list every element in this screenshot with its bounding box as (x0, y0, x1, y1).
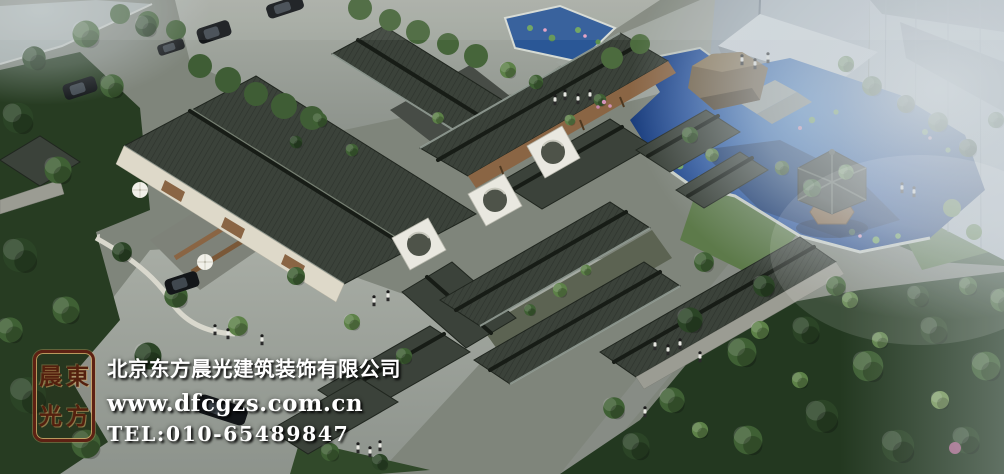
company-seal: 晨 東 光 方 (33, 350, 95, 442)
seal-char-top-right: 東 (66, 365, 89, 388)
company-name: 北京东方晨光建筑装饰有限公司 (107, 352, 401, 382)
patio-umbrella (132, 182, 148, 198)
patio-umbrella (197, 254, 213, 270)
watermark: 晨 東 光 方 北京东方晨光建筑装饰有限公司 www.dfcgzs.com.cn… (33, 350, 401, 446)
seal-char-bottom-left: 光 (39, 405, 62, 428)
seal-char-bottom-right: 方 (66, 405, 89, 428)
website-url: www.dfcgzs.com.cn (107, 390, 401, 417)
architectural-rendering: 晨 東 光 方 北京东方晨光建筑装饰有限公司 www.dfcgzs.com.cn… (0, 0, 1004, 474)
telephone-number: TEL:010-65489847 (107, 422, 401, 446)
watermark-text: 北京东方晨光建筑装饰有限公司 www.dfcgzs.com.cn TEL:010… (107, 350, 401, 446)
seal-char-top-left: 晨 (39, 365, 62, 388)
